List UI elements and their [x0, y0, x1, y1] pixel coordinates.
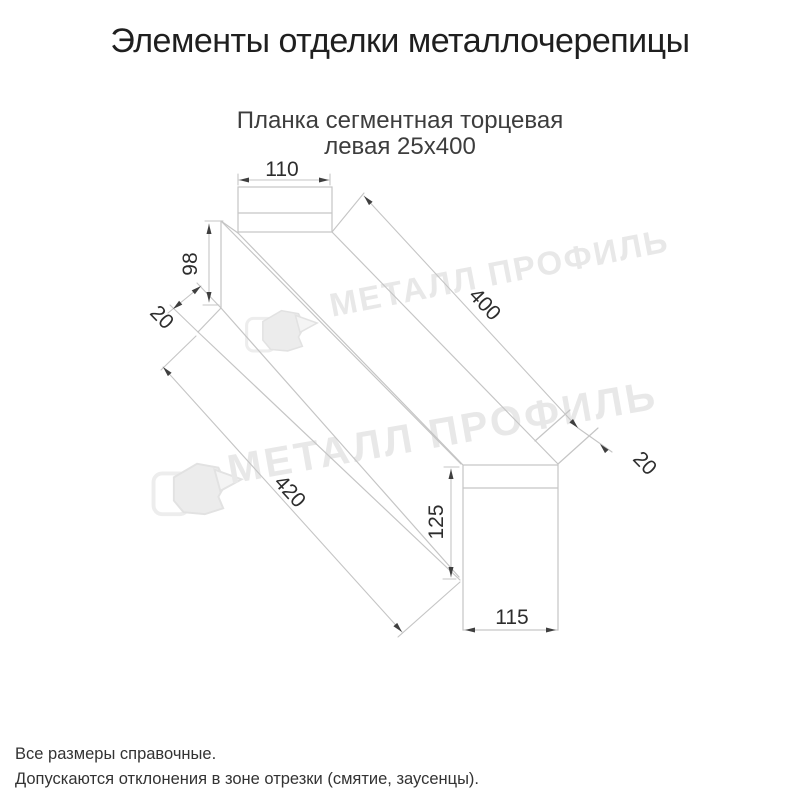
dim-top-tab-width: 110	[265, 158, 298, 181]
dim-right-end-width: 115	[495, 606, 528, 629]
dim-left-end-height: 98	[179, 252, 202, 275]
part-outline	[198, 187, 598, 630]
dim-top-edge-length: 400	[464, 284, 505, 325]
dim-right-end-height: 125	[425, 504, 448, 539]
technical-drawing: 110 98 20 400 20 420 125 115	[0, 0, 800, 800]
dim-bottom-edge-length: 420	[269, 471, 310, 512]
dimension-lines	[161, 174, 612, 637]
dimension-arrows	[163, 178, 609, 633]
page: Элементы отделки металлочерепицы Планка …	[0, 0, 800, 800]
dim-left-hem: 20	[145, 301, 178, 334]
dimension-labels: 110 98 20 400 20 420 125 115	[145, 158, 661, 629]
dim-right-hem: 20	[628, 447, 661, 480]
